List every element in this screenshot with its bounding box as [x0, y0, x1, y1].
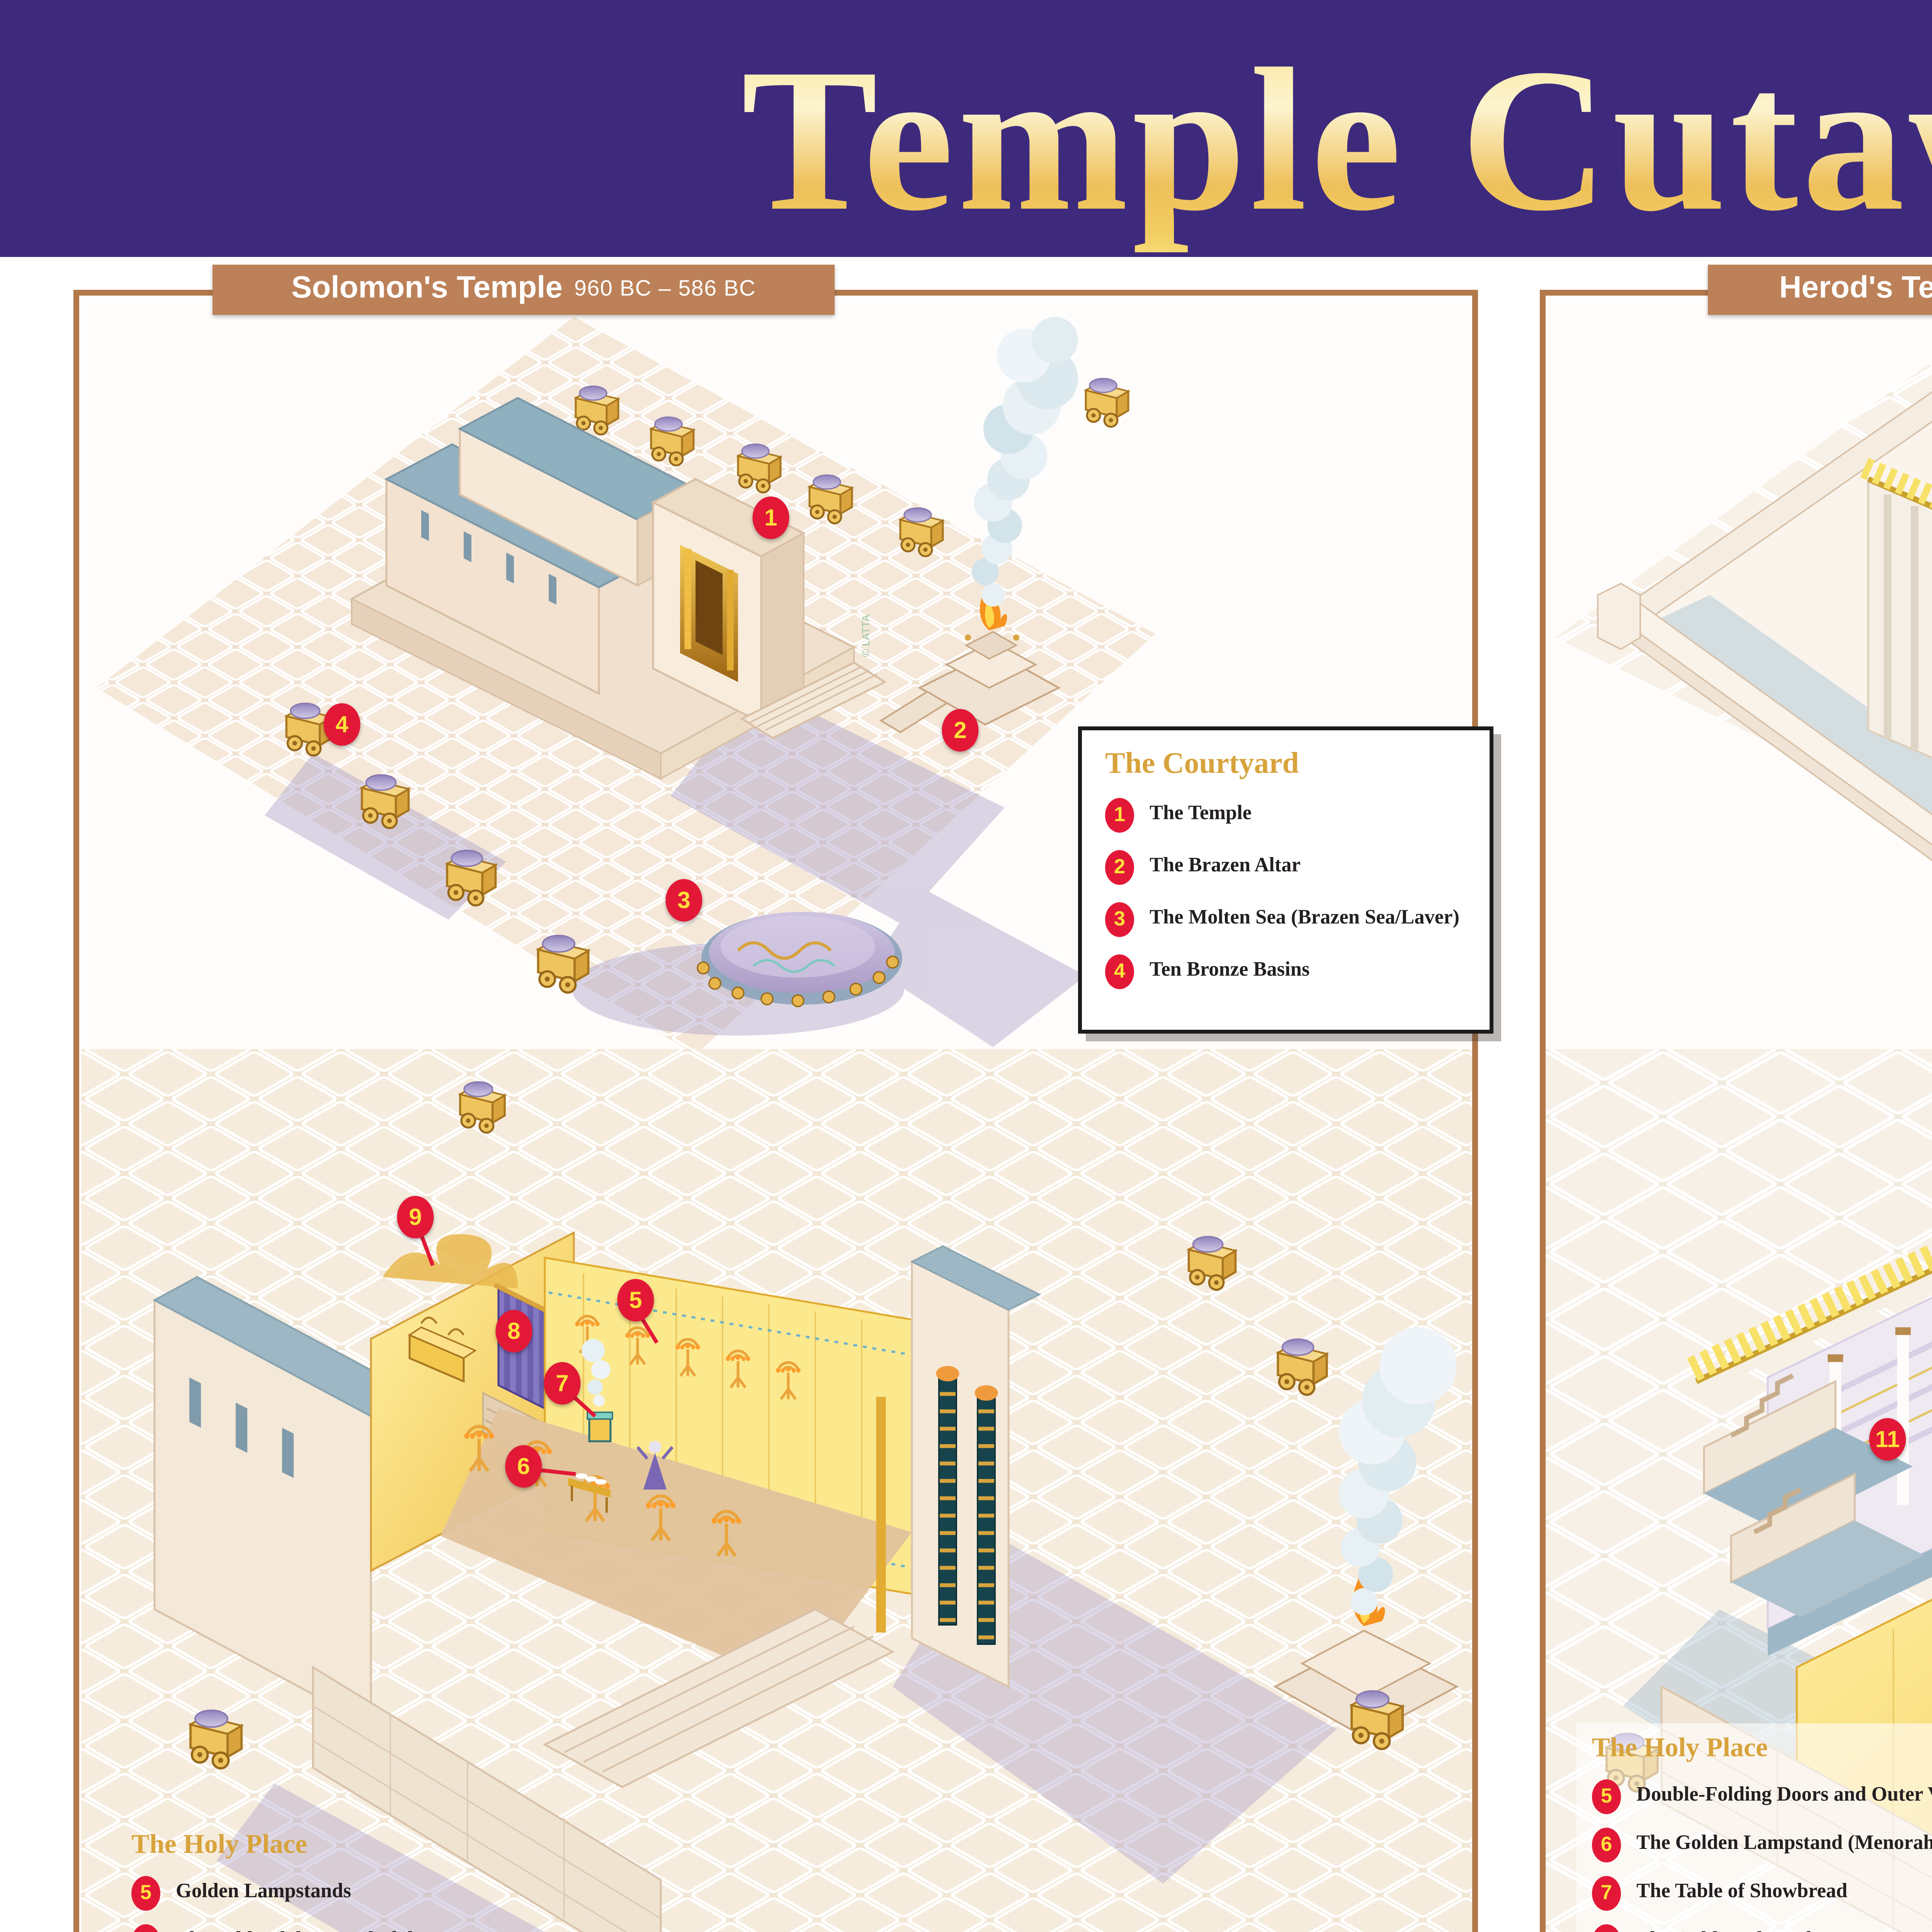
item-number-badge: 5	[1592, 1779, 1621, 1814]
legend-item: 7 The Table of Showbread	[1592, 1876, 1932, 1911]
scene-marker-5: 5	[617, 1279, 654, 1321]
scene-marker-1: 1	[753, 497, 789, 539]
item-label: The Golden Lampstand (Menorah)	[1636, 1833, 1932, 1857]
herod-header-title: Herod's Temple	[1779, 272, 1932, 307]
poster-title: Temple Cutaway	[0, 0, 1932, 282]
poster-root: Temple Cutaway Solomon's Temple 960 BC –…	[0, 0, 1932, 1932]
legend-title: The Courtyard	[1105, 748, 1466, 782]
item-label: The Table of Showbread	[1636, 1882, 1847, 1905]
item-label: The Molten Sea (Brazen Sea/Laver)	[1150, 908, 1459, 931]
legend-item: 6 The Golden Lampstand (Menorah)	[1592, 1828, 1932, 1862]
solomon-courtyard-illustration: © LATTA	[81, 309, 1175, 1063]
item-label: The Temple	[1150, 804, 1252, 827]
courtyard-legend: The Courtyard 1 The Temple 2 The Brazen …	[1078, 726, 1493, 1034]
herod-courtyard-illustration: © Bill Latta	[1544, 309, 1932, 1082]
title-banner: Temple Cutaway	[0, 0, 1932, 257]
legend-item: 6 The Table of the Bread of the Presence	[131, 1924, 649, 1932]
legend-title: The Holy Place	[131, 1832, 649, 1862]
item-number-badge: 8	[1592, 1924, 1621, 1932]
scene-marker-2: 2	[942, 709, 979, 752]
item-number-badge: 1	[1105, 798, 1134, 833]
scene-marker-11: 11	[1869, 1418, 1906, 1461]
legend-item: 5 Golden Lampstands	[131, 1876, 649, 1911]
legend-item: 5 Double-Folding Doors and Outer Veil	[1592, 1779, 1932, 1814]
legend-item: 1 The Temple	[1105, 798, 1466, 833]
scene-marker-8: 8	[496, 1310, 532, 1352]
artist-credit: © LATTA	[860, 614, 872, 657]
item-number-badge: 3	[1105, 902, 1134, 937]
item-label: Golden Lampstands	[176, 1882, 351, 1905]
item-number-badge: 6	[1592, 1828, 1621, 1862]
legend-item: 3 The Molten Sea (Brazen Sea/Laver)	[1105, 902, 1466, 937]
item-label: Double-Folding Doors and Outer Veil	[1636, 1785, 1932, 1808]
solomon-holy-place-legend: The Holy Place 5 Golden Lampstands 6 The…	[116, 1820, 665, 1932]
scene-marker-6: 6	[505, 1445, 542, 1488]
item-label: The Brazen Altar	[1150, 856, 1301, 879]
herod-header-bar: Herod's Temple 20 BC – AD 70	[1708, 265, 1932, 315]
item-number-badge: 4	[1105, 954, 1134, 989]
scene-marker-7: 7	[544, 1362, 581, 1405]
item-number-badge: 2	[1105, 850, 1134, 885]
legend-item: 8 The Golden Altar of Incense	[1592, 1924, 1932, 1932]
item-label: The Golden Altar of Incense	[1636, 1930, 1881, 1932]
solomon-header-bar: Solomon's Temple 960 BC – 586 BC	[213, 265, 835, 315]
scene-marker-3: 3	[666, 879, 702, 922]
solomon-header-title: Solomon's Temple	[291, 272, 563, 307]
item-number-badge: 6	[131, 1924, 160, 1932]
scene-marker-9: 9	[397, 1196, 434, 1238]
item-label: The Table of the Bread of the Presence	[176, 1930, 509, 1932]
solomon-header-dates: 960 BC – 586 BC	[574, 278, 756, 301]
herod-holy-place-legend: The Holy Place 5 Double-Folding Doors an…	[1577, 1723, 1932, 1932]
legend-item: 2 The Brazen Altar	[1105, 850, 1466, 885]
legend-title: The Holy Place	[1592, 1735, 1932, 1766]
pillar-boaz	[978, 1397, 995, 1644]
item-label: Ten Bronze Basins	[1150, 960, 1310, 983]
legend-item: 4 Ten Bronze Basins	[1105, 954, 1466, 989]
item-number-badge: 5	[131, 1876, 160, 1911]
scene-marker-4: 4	[324, 703, 361, 746]
pillar-jachin	[939, 1378, 956, 1625]
item-number-badge: 7	[1592, 1876, 1621, 1911]
solomon-cutaway-illustration: © Bill Latta	[81, 1049, 1472, 1932]
